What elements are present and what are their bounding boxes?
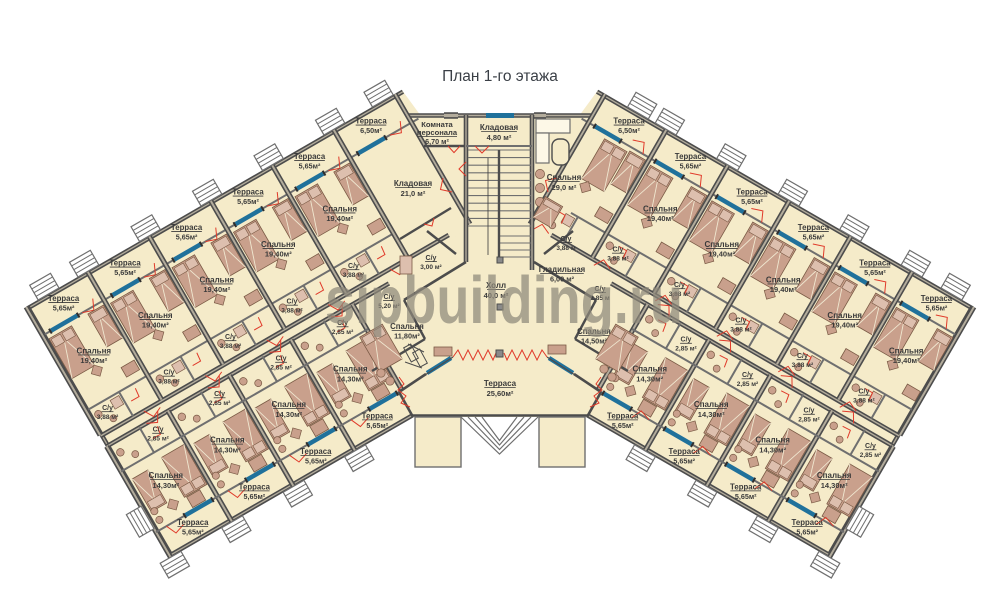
svg-text:Терраса: Терраса [109, 258, 141, 267]
svg-text:Спальня: Спальня [77, 346, 112, 355]
svg-text:19,40м²: 19,40м² [326, 214, 353, 223]
svg-text:Спальня: Спальня [322, 204, 357, 213]
svg-text:С/у: С/у [735, 318, 746, 325]
svg-text:Терраса: Терраса [171, 223, 203, 232]
svg-text:Спальня: Спальня [632, 365, 667, 374]
svg-text:2,85 м²: 2,85 м² [860, 452, 882, 459]
svg-text:С/у: С/у [797, 353, 808, 360]
svg-text:3,88 м²: 3,88 м² [607, 255, 629, 262]
svg-text:19,40м²: 19,40м² [893, 356, 920, 365]
svg-text:29,0 м²: 29,0 м² [552, 183, 577, 192]
svg-text:Спальня: Спальня [694, 400, 729, 409]
svg-text:5,65м²: 5,65м² [680, 162, 702, 171]
svg-text:С/у: С/у [561, 236, 572, 243]
svg-text:5,65м²: 5,65м² [237, 197, 259, 206]
svg-text:персонала: персонала [417, 128, 458, 137]
svg-text:Спальня: Спальня [138, 311, 173, 320]
svg-text:14,30м²: 14,30м² [152, 481, 179, 490]
svg-text:14,50м²: 14,50м² [581, 337, 608, 346]
svg-text:Терраса: Терраса [232, 187, 264, 196]
svg-text:2,85 м²: 2,85 м² [737, 381, 759, 388]
svg-text:Спальня: Спальня [817, 471, 852, 480]
svg-text:С/у: С/у [804, 408, 815, 415]
svg-text:Терраса: Терраса [484, 379, 517, 388]
svg-text:5,65м²: 5,65м² [673, 456, 695, 465]
svg-text:6,50м²: 6,50м² [618, 126, 640, 135]
svg-text:Терраса: Терраса [355, 116, 387, 125]
svg-text:14,30м²: 14,30м² [275, 410, 302, 419]
svg-text:Терраса: Терраса [177, 518, 209, 527]
svg-text:Терраса: Терраса [294, 152, 326, 161]
svg-text:4,80 м²: 4,80 м² [487, 133, 512, 142]
svg-text:3,88 м²: 3,88 м² [97, 414, 119, 421]
svg-text:2,85 м²: 2,85 м² [147, 436, 169, 443]
svg-text:Терраса: Терраса [607, 411, 639, 420]
svg-text:6,70 м²: 6,70 м² [425, 137, 449, 146]
svg-text:С/у: С/у [865, 443, 876, 450]
svg-text:3,88 м²: 3,88 м² [792, 362, 814, 369]
svg-text:5,65м²: 5,65м² [612, 421, 634, 430]
svg-text:Терраса: Терраса [730, 482, 762, 491]
svg-text:С/у: С/у [858, 389, 869, 396]
svg-text:19,40м²: 19,40м² [831, 321, 858, 330]
svg-text:С/у: С/у [742, 372, 753, 379]
svg-text:Спальня: Спальня [333, 365, 368, 374]
svg-text:14,30м²: 14,30м² [214, 445, 241, 454]
svg-text:Терраса: Терраса [792, 518, 824, 527]
svg-text:2,85 м²: 2,85 м² [209, 400, 231, 407]
svg-text:3,88 м²: 3,88 м² [281, 307, 303, 314]
svg-text:С/у: С/у [153, 427, 164, 434]
svg-text:14,30м²: 14,30м² [698, 410, 725, 419]
svg-text:19,40м²: 19,40м² [265, 250, 292, 259]
svg-text:Терраса: Терраса [239, 482, 271, 491]
svg-text:Спальня: Спальня [643, 204, 678, 213]
svg-text:25,60м²: 25,60м² [487, 389, 514, 398]
svg-text:19,40м²: 19,40м² [203, 285, 230, 294]
svg-text:5,65м²: 5,65м² [926, 304, 948, 313]
svg-text:5,65м²: 5,65м² [243, 492, 265, 501]
svg-text:Спальня: Спальня [210, 436, 245, 445]
svg-text:5,65м²: 5,65м² [114, 268, 136, 277]
svg-text:Кладовая: Кладовая [480, 123, 519, 132]
svg-text:2,85 м²: 2,85 м² [270, 365, 292, 372]
svg-text:Терраса: Терраса [48, 294, 80, 303]
svg-text:С/у: С/у [214, 391, 225, 398]
svg-text:5,65м²: 5,65м² [796, 527, 818, 536]
svg-text:3,88 м²: 3,88 м² [220, 343, 242, 350]
svg-text:19,40м²: 19,40м² [770, 285, 797, 294]
svg-text:Спальня: Спальня [704, 240, 739, 249]
svg-text:С/у: С/у [287, 299, 298, 306]
svg-text:Спальня: Спальня [272, 400, 307, 409]
svg-text:5,65м²: 5,65м² [299, 162, 321, 171]
svg-text:14,30м²: 14,30м² [636, 374, 663, 383]
svg-text:14,30м²: 14,30м² [759, 445, 786, 454]
svg-text:2,85 м²: 2,85 м² [798, 417, 820, 424]
svg-text:5,65м²: 5,65м² [735, 492, 757, 501]
svg-text:Спальня: Спальня [149, 471, 184, 480]
svg-text:Спальня: Спальня [766, 275, 801, 284]
svg-text:Спальня: Спальня [889, 346, 924, 355]
svg-text:С/у: С/у [612, 247, 623, 254]
svg-text:Терраса: Терраса [613, 116, 645, 125]
svg-text:3,88 м²: 3,88 м² [158, 378, 180, 385]
svg-text:Кладовая: Кладовая [394, 179, 433, 188]
svg-text:19,40м²: 19,40м² [708, 250, 735, 259]
svg-text:Терраса: Терраса [859, 258, 891, 267]
svg-text:Терраса: Терраса [675, 152, 707, 161]
svg-text:Спальня: Спальня [200, 275, 235, 284]
svg-text:3,88 м²: 3,88 м² [853, 397, 875, 404]
svg-text:sipbuilding.ru: sipbuilding.ru [325, 263, 683, 338]
svg-text:Спальня: Спальня [755, 436, 790, 445]
svg-text:План 1-го этажа: План 1-го этажа [442, 68, 558, 85]
svg-text:5,65м²: 5,65м² [305, 456, 327, 465]
svg-text:5,65м²: 5,65м² [803, 233, 825, 242]
svg-text:5,65м²: 5,65м² [741, 197, 763, 206]
svg-text:14,30м²: 14,30м² [337, 374, 364, 383]
svg-text:Спальня: Спальня [261, 240, 296, 249]
svg-text:Терраса: Терраса [362, 411, 394, 420]
svg-text:5,65м²: 5,65м² [176, 233, 198, 242]
svg-text:21,0 м²: 21,0 м² [401, 189, 426, 198]
svg-text:2,85 м²: 2,85 м² [675, 346, 697, 353]
svg-text:Спальня: Спальня [547, 173, 582, 182]
svg-text:Терраса: Терраса [669, 447, 701, 456]
svg-text:3,88 м²: 3,88 м² [730, 326, 752, 333]
svg-text:14,30м²: 14,30м² [821, 481, 848, 490]
svg-text:Терраса: Терраса [798, 223, 830, 232]
svg-text:19,40м²: 19,40м² [80, 356, 107, 365]
svg-text:Терраса: Терраса [921, 294, 953, 303]
svg-text:С/у: С/у [102, 405, 113, 412]
svg-text:Терраса: Терраса [300, 447, 332, 456]
svg-text:5,65м²: 5,65м² [53, 304, 75, 313]
svg-text:5,65м²: 5,65м² [864, 268, 886, 277]
svg-text:19,40м²: 19,40м² [142, 321, 169, 330]
svg-text:С/у: С/у [225, 334, 236, 341]
svg-text:6,50м²: 6,50м² [360, 126, 382, 135]
svg-text:Терраса: Терраса [736, 187, 768, 196]
svg-text:Спальня: Спальня [827, 311, 862, 320]
svg-text:5,65м²: 5,65м² [182, 527, 204, 536]
svg-text:С/у: С/у [164, 370, 175, 377]
svg-text:С/у: С/у [276, 356, 287, 363]
svg-text:5,65м²: 5,65м² [366, 421, 388, 430]
svg-text:С/у: С/у [426, 255, 437, 262]
svg-text:3,88 м: 3,88 м [556, 245, 575, 252]
svg-text:19,40м²: 19,40м² [647, 214, 674, 223]
